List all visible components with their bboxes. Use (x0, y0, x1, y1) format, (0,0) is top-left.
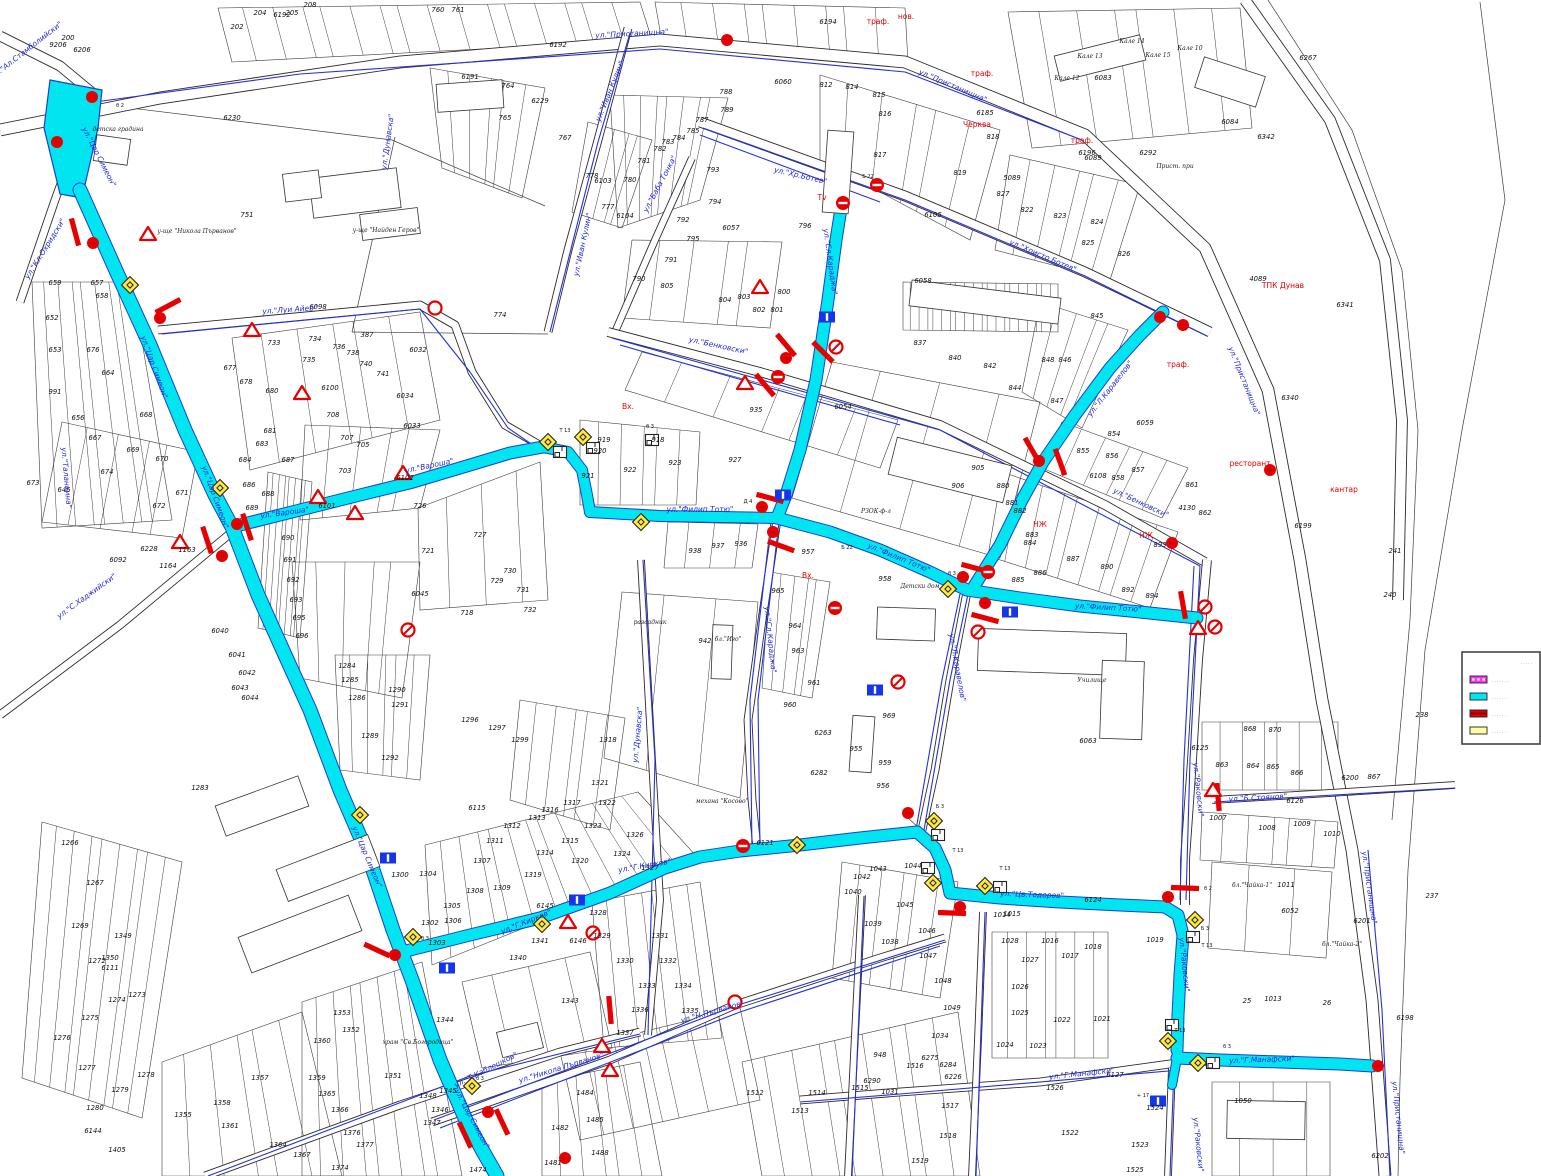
parcel-number: 1013 (1264, 995, 1281, 1003)
parcel-number: 6342 (1257, 133, 1274, 141)
parcel-number: 1361 (221, 1122, 238, 1130)
hydrant-icon: ПХ (154, 312, 166, 324)
info-sign-icon (819, 312, 835, 323)
valve-icon (363, 942, 391, 959)
parcel-number: 1344 (436, 1016, 453, 1024)
parcel-number: 1049 (943, 1004, 960, 1012)
legend-chip (1470, 727, 1487, 734)
parcel-number: 680 (266, 387, 279, 395)
parcel-number: 1011 (1277, 881, 1294, 889)
parcel-number: 6115 (468, 804, 485, 812)
hydrant-icon: ПХ (1162, 891, 1174, 903)
info-sign-icon (569, 895, 585, 906)
parcel-number: 1346 (431, 1106, 449, 1114)
parcel-number: 855 (1077, 447, 1090, 455)
building (711, 625, 733, 680)
parcel-number: 1044 (904, 862, 921, 870)
info-sign-icon (439, 963, 455, 974)
parcel-number: 1365 (318, 1090, 335, 1098)
parcel-number: 1277 (78, 1064, 96, 1072)
parcel-number: 693 (290, 596, 303, 604)
svg-text:ПХ: ПХ (485, 1111, 491, 1115)
parcel-number: 842 (984, 362, 997, 370)
parcel-number: 684 (239, 456, 252, 464)
building (909, 280, 1061, 324)
parcel-number: 1353 (333, 1009, 350, 1017)
parcel-number: 6192 (549, 41, 566, 49)
parcel-number: 803 (738, 293, 751, 301)
svg-text:ПХ: ПХ (1375, 1065, 1381, 1069)
parcel-number: 937 (712, 542, 726, 550)
parcel-number: 790 (633, 275, 646, 283)
svg-text:ПХ: ПХ (157, 317, 163, 321)
info-sign-icon (867, 685, 883, 696)
parcel-number: 6206 (73, 46, 91, 54)
parcel-number: 780 (624, 176, 637, 184)
building (238, 895, 362, 973)
parcel-number: 26 (1323, 999, 1332, 1007)
parcel-number: 1022 (1053, 1016, 1070, 1024)
parcel-number: 668 (140, 411, 154, 419)
parcel-number: 1340 (509, 954, 526, 962)
labels: 2002022042052086206920661926192619161946… (0, 1, 1439, 1174)
marker-code: Б 3 (936, 804, 944, 810)
parcel-number: 760 (432, 6, 445, 14)
parcel-number: 6275 (921, 1054, 938, 1062)
triangle-sign-icon (347, 506, 363, 519)
parcel-number: 202 (231, 23, 244, 31)
parcel-number: 1367 (293, 1151, 311, 1159)
parcel-number: 894 (1146, 592, 1159, 600)
parcel-number: 802 (753, 306, 766, 314)
parcel-number: 6192 (273, 11, 290, 19)
parcel-number: 1296 (461, 716, 479, 724)
parcel-number: 740 (360, 360, 373, 368)
street-name: ул."Цар Симеон" (199, 464, 230, 530)
parcel-number: 6198 (1396, 1014, 1414, 1022)
facility-label: Вх. (802, 571, 814, 580)
parcel-number: 1007 (1209, 814, 1227, 822)
parcel-number: 1267 (86, 879, 104, 887)
cadastral-map-svg: ПХПХПХПХПХПХПХПХПХПХПХПХПХПХПХПХПХПХПХПХ… (0, 0, 1541, 1176)
parcel-number: 1518 (939, 1132, 957, 1140)
parcel-number: 6229 (531, 97, 548, 105)
parcel-number: 652 (46, 314, 59, 322)
parcel-number: 792 (677, 216, 690, 224)
svg-text:ПХ: ПХ (724, 39, 730, 43)
parcel-number: 1347 (423, 1119, 441, 1127)
hydrant-icon: ПХ (482, 1106, 494, 1118)
parcel-number: 721 (422, 547, 435, 555)
parcel-number: 1364 (269, 1141, 286, 1149)
facility-label: Тv (816, 193, 827, 202)
facility-label: Черква (963, 120, 991, 129)
parcel-number: 1359 (308, 1074, 325, 1082)
parcel-number: 1284 (338, 662, 355, 670)
parcel-number: 1343 (561, 997, 578, 1005)
poi-label: Кале 15 (1144, 52, 1170, 59)
svg-text:ПХ: ПХ (1169, 542, 1175, 546)
parcel-number: 1322 (598, 799, 615, 807)
parcel-number: 734 (309, 335, 322, 343)
building (436, 80, 504, 113)
poi-label: механа "Косово" (696, 798, 749, 805)
poi-label: бл."Иго" (715, 636, 742, 643)
parcel-number: 237 (1426, 892, 1440, 900)
parcel-number: 905 (972, 464, 985, 472)
svg-text:ПХ: ПХ (957, 906, 963, 910)
parcel-number: 6201 (1353, 917, 1370, 925)
parcel-number: 387 (361, 331, 375, 339)
svg-text:ПХ: ПХ (1180, 324, 1186, 328)
facility-label: ТПК Дунав (1261, 281, 1304, 290)
parcel-number: 729 (491, 577, 504, 585)
parcel-number: 732 (524, 606, 537, 614)
parcel-number: 865 (1267, 763, 1280, 771)
parcel-number: 695 (293, 614, 306, 622)
parcel-number: 6058 (914, 277, 932, 285)
svg-text:ПХ: ПХ (1036, 460, 1042, 464)
parcel-number: 669 (127, 446, 140, 454)
parcel-number: 6057 (722, 224, 740, 232)
parcel-number: 1317 (563, 799, 581, 807)
parcel-number: 1319 (524, 871, 541, 879)
street-name: ул."Б.Стоянов" (1227, 791, 1287, 803)
parcel-number: 1352 (342, 1026, 359, 1034)
parcel-number: 6202 (1371, 1152, 1388, 1160)
parcel-number: 938 (689, 547, 703, 555)
legend-item-label: . . . . . . (1492, 695, 1506, 700)
svg-text:ПХ: ПХ (1165, 896, 1171, 900)
hydrant-icon: ПХ (756, 501, 768, 513)
street-name: ул."С.Хаджийски" (54, 571, 118, 621)
parcel-number: 1334 (674, 982, 691, 990)
marker-code: б 3 (646, 424, 654, 430)
hydrant-icon: ПХ (216, 550, 228, 562)
parcel-number: 964 (789, 622, 802, 630)
svg-text:ПХ: ПХ (219, 555, 225, 559)
parcel-number: 840 (949, 354, 962, 362)
triangle-sign-icon (752, 280, 768, 293)
parcel-number: 1302 (421, 919, 438, 927)
parcel-number: 733 (268, 339, 281, 347)
parcel-number: 1323 (584, 822, 601, 830)
parcel-number: 918 (652, 436, 666, 444)
parcel-number: 6340 (1281, 394, 1298, 402)
parcel-number: 1021 (1093, 1015, 1110, 1023)
parcel-number: 6146 (569, 937, 587, 945)
parcel-number: 657 (91, 279, 105, 287)
parcel-number: 25 (1243, 997, 1252, 1005)
street-name: ул."Раковски" (1191, 1116, 1206, 1172)
parcel-number: 671 (176, 489, 189, 497)
parcel-number: 866 (1291, 769, 1305, 777)
parcel-number: 963 (792, 647, 805, 655)
parcel-number: 965 (772, 587, 785, 595)
parcel-number: 847 (1051, 397, 1065, 405)
marker-code: б 3 (1223, 1044, 1231, 1050)
parcel-number: 6044 (241, 694, 258, 702)
parcel-number: 1357 (251, 1074, 269, 1082)
marker-code: Д 4 (744, 499, 753, 505)
parcel-number: 674 (101, 468, 114, 476)
marker-code: б 3 (476, 1076, 484, 1082)
svg-text:ПХ: ПХ (54, 141, 60, 145)
parcel-number: 880 (997, 482, 1010, 490)
marker-code: б 3 (948, 571, 956, 577)
parcel-number: 1276 (53, 1034, 71, 1042)
parcel-number: 1318 (599, 736, 617, 744)
hydrant-icon: ПХ (954, 901, 966, 913)
legend-chip (1470, 693, 1487, 700)
parcel-number: 6104 (616, 212, 633, 220)
valve-icon (1171, 885, 1199, 891)
parcel-number: 1280 (86, 1104, 103, 1112)
parcel-number: 1023 (1029, 1042, 1046, 1050)
parcel-number: 691 (284, 556, 297, 564)
no-entry-icon (771, 370, 785, 384)
svg-text:ПХ: ПХ (759, 506, 765, 510)
parcel-number: 1305 (443, 902, 460, 910)
parcel-number: 936 (735, 540, 749, 548)
building (1195, 57, 1266, 107)
parcel-number: 670 (156, 455, 169, 463)
parcel-number: 1275 (81, 1014, 98, 1022)
parcel-number: 816 (879, 110, 893, 118)
parcel-number: 922 (624, 466, 637, 474)
parcel-number: 857 (1132, 466, 1146, 474)
svg-text:ПХ: ПХ (392, 954, 398, 958)
parcel-number: 1332 (659, 957, 676, 965)
poi-label: Кале 13 (1076, 53, 1102, 60)
ring-sign-icon (892, 676, 905, 689)
manhole-icon (922, 863, 935, 874)
hydrant-icon: ПХ (767, 526, 779, 538)
parcel-number: 1304 (419, 870, 436, 878)
no-entry-icon (736, 839, 750, 853)
svg-text:ПХ: ПХ (89, 96, 95, 100)
parcel-number: 956 (877, 782, 891, 790)
building (849, 715, 875, 772)
parcel-number: 1515 (851, 1084, 868, 1092)
marker-code: б 2 (1204, 886, 1212, 892)
parcel-number: 1320 (571, 857, 588, 865)
parcel-number: 1046 (918, 927, 936, 935)
parcel-number: 6059 (1136, 419, 1153, 427)
valve-icon (494, 1108, 511, 1136)
triangle-sign-icon (560, 915, 576, 928)
parcel-number: 1028 (1001, 937, 1019, 945)
parcel-number: 6041 (228, 651, 245, 659)
marker-code: Б 22 (862, 174, 873, 180)
valve-icon (971, 612, 999, 624)
parcel-number: 1488 (591, 1149, 609, 1157)
parcel-number: 1329 (593, 932, 610, 940)
parcel-number: 1351 (384, 1072, 401, 1080)
parcel-number: 1017 (1061, 952, 1079, 960)
parcel-number: 868 (1244, 725, 1258, 733)
parcel-number: 1328 (589, 909, 607, 917)
parcel-number: 795 (687, 235, 700, 243)
parcel-number: 1525 (1126, 1166, 1143, 1174)
parcel-number: 1348 (419, 1092, 437, 1100)
svg-text:ПХ: ПХ (90, 242, 96, 246)
parcel-number: 735 (303, 356, 316, 364)
parcel-number: 683 (256, 440, 269, 448)
parcel-number: 864 (1247, 762, 1260, 770)
parcel-number: 6042 (238, 669, 255, 677)
parcel-number: 801 (771, 306, 784, 314)
parcel-number: 958 (879, 575, 893, 583)
parcel-number: 1523 (1131, 1141, 1148, 1149)
manhole-icon (932, 830, 945, 841)
parcel-number: 1286 (348, 694, 366, 702)
marker-code: Т 13 (1173, 1028, 1185, 1034)
parcel-number: 6185 (976, 109, 993, 117)
parcel-number: 6230 (223, 114, 240, 122)
parcel-number: 678 (240, 378, 254, 386)
parcel-number: 927 (729, 456, 743, 464)
parcel-number: 1043 (869, 865, 886, 873)
parcel-number: 687 (282, 456, 296, 464)
building (496, 1022, 543, 1057)
parcel-number: 731 (517, 586, 530, 594)
marker-code: + 17 (1137, 1093, 1149, 1099)
parcel-number: 777 (602, 203, 616, 211)
parcel-number: 906 (952, 482, 966, 490)
parcel-number: 863 (1216, 761, 1229, 769)
parcel-number: 1273 (128, 991, 145, 999)
parcel-number: 1303 (428, 939, 445, 947)
parcel-number: 1027 (1021, 956, 1039, 964)
hydrant-icon: ПХ (957, 571, 969, 583)
marker-code: Т 13 (998, 866, 1010, 872)
parcel-number: 690 (282, 534, 295, 542)
parcel-number: 204 (254, 9, 267, 17)
parcel-number: 6282 (810, 769, 827, 777)
parcel-number: 957 (802, 548, 816, 556)
parcel-number: 1360 (313, 1037, 330, 1045)
info-sign-icon (1002, 607, 1018, 618)
parcel-number: 1040 (844, 888, 861, 896)
parcel-number: 708 (327, 411, 341, 419)
parcel-number: 241 (1389, 547, 1402, 555)
shaft-diamond-icon (925, 875, 942, 892)
parcel-number: 1519 (911, 1157, 928, 1165)
parcel-number: 6083 (1094, 74, 1111, 82)
parcel-number: 667 (89, 434, 103, 442)
parcel-number: 6194 (819, 18, 836, 26)
ring-sign-icon (830, 341, 843, 354)
triangle-sign-icon (294, 386, 310, 399)
parcel-number: 791 (665, 256, 678, 264)
parcel-number: 767 (559, 134, 573, 142)
facility-label: нов. (898, 12, 914, 21)
parcel-number: 959 (879, 759, 892, 767)
parcel-number: 1309 (493, 884, 510, 892)
parcel-number: 761 (452, 6, 465, 14)
parcel-number: 785 (687, 127, 700, 135)
parcel-number: 1164 (159, 562, 176, 570)
parcel-number: 238 (1416, 711, 1430, 719)
parcel-number: 800 (778, 288, 791, 296)
parcel-number: 960 (784, 701, 797, 709)
svg-text:ПХ: ПХ (982, 602, 988, 606)
poi-label: РЗОК-ф-л (860, 508, 891, 515)
parcel-number: 1274 (108, 996, 125, 1004)
parcel-number: 1010 (1323, 830, 1340, 838)
parcel-number: 1050 (1234, 1097, 1251, 1105)
parcel-number: 1290 (388, 686, 405, 694)
parcel-number: 848 (1042, 356, 1056, 364)
parcel-number: 846 (1059, 356, 1073, 364)
ring-sign-icon (429, 302, 442, 315)
parcel-number: 6191 (461, 73, 478, 81)
street-name: ул."Пристанищна" (1390, 1080, 1407, 1155)
map-canvas: ПХПХПХПХПХПХПХПХПХПХПХПХПХПХПХПХПХПХПХПХ… (0, 0, 1541, 1176)
parcel-number: 788 (720, 88, 734, 96)
parcel-number: 1516 (906, 1062, 924, 1070)
parcel-number: 6105 (924, 211, 941, 219)
parcel-number: 6100 (321, 384, 338, 392)
parcel-number: 677 (224, 364, 238, 372)
parcel-number: 862 (1199, 509, 1212, 517)
parcel-number: 1279 (111, 1086, 128, 1094)
ring-sign-icon (972, 626, 985, 639)
parcel-number: 1485 (586, 1116, 603, 1124)
parcel-number: 814 (846, 83, 859, 91)
parcel-number: 1045 (896, 901, 913, 909)
parcel-number: 1307 (473, 857, 491, 865)
poi-label: у-ще "Найден Геров" (352, 227, 420, 234)
valve-icon (69, 218, 81, 246)
parcel-number: 1285 (341, 676, 358, 684)
hydrant-icon: ПХ (87, 237, 99, 249)
parcel-number: 6033 (403, 422, 420, 430)
marker-code: Б 3 (1201, 926, 1209, 932)
parcel-number: 920 (594, 447, 607, 455)
street-name: ул."Ал.Стамболийски" (0, 19, 64, 81)
parcel-number: 1018 (1084, 943, 1102, 951)
parcel-number: 1038 (881, 938, 899, 946)
parcel-number: 886 (1034, 569, 1048, 577)
parcel-number: 6292 (1139, 149, 1156, 157)
poi-label: у-ще "Никола Първанов" (156, 228, 237, 235)
parcel-number: 1336 (631, 1006, 649, 1014)
parcel-number: 885 (1012, 576, 1025, 584)
parcel-number: 751 (241, 211, 254, 219)
hydrant-icon: ПХ (1154, 311, 1166, 323)
parcel-number: 921 (582, 472, 595, 480)
parcel-number: 6126 (1286, 797, 1304, 805)
parcel-number: 1025 (1011, 1009, 1028, 1017)
parcel-number: 1266 (61, 839, 79, 847)
parcel-number: 1283 (191, 784, 208, 792)
parcel-number: 774 (494, 311, 507, 319)
building (282, 170, 321, 202)
hydrant-icon: ПХ (1177, 319, 1189, 331)
parcel-number: 658 (96, 292, 110, 300)
facility-label: Вх. (622, 402, 634, 411)
parcel-number: 1321 (591, 779, 608, 787)
parcel-number: 817 (874, 151, 888, 159)
parcel-number: 6144 (84, 1127, 101, 1135)
facility-label: кантар (1330, 485, 1358, 494)
parcel-number: 6054 (834, 403, 851, 411)
parcel-number: 1311 (486, 837, 503, 845)
parcel-number: 6103 (594, 177, 611, 185)
hydrant-icon: ПХ (86, 91, 98, 103)
